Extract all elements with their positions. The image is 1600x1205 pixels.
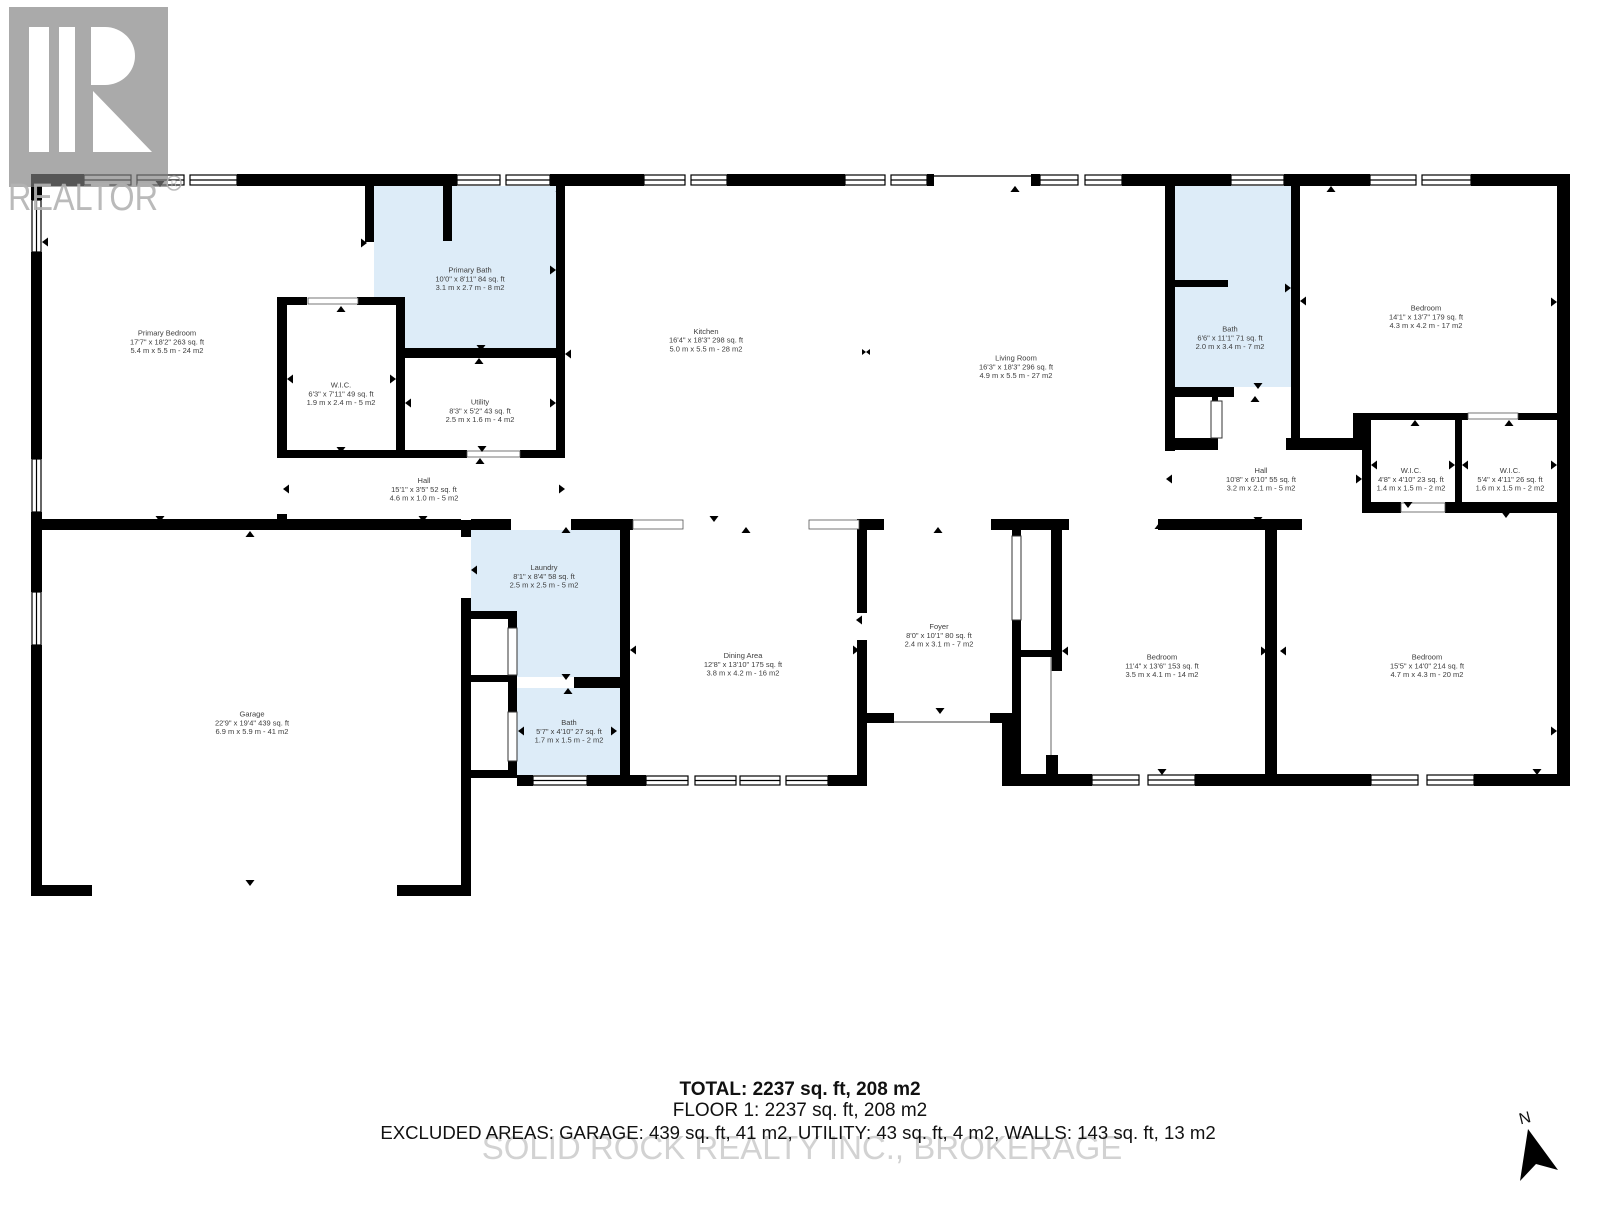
svg-text:8'1" x 8'4" 58 sq. ft: 8'1" x 8'4" 58 sq. ft [513, 572, 575, 581]
svg-text:3.5 m x 4.1 m - 14 m2: 3.5 m x 4.1 m - 14 m2 [1126, 670, 1199, 679]
svg-text:5.4 m x 5.5 m - 24 m2: 5.4 m x 5.5 m - 24 m2 [131, 346, 204, 355]
svg-text:17'7" x 18'2" 263 sq. ft: 17'7" x 18'2" 263 sq. ft [130, 337, 205, 346]
svg-text:Primary Bath: Primary Bath [448, 265, 491, 274]
svg-text:W.I.C.: W.I.C. [1401, 466, 1421, 475]
svg-text:1.7 m x 1.5 m - 2 m2: 1.7 m x 1.5 m - 2 m2 [535, 736, 604, 745]
svg-text:2.5 m x 1.6 m - 4 m2: 2.5 m x 1.6 m - 4 m2 [446, 415, 515, 424]
svg-text:3.1 m x 2.7 m - 8 m2: 3.1 m x 2.7 m - 8 m2 [436, 283, 505, 292]
svg-text:Utility: Utility [471, 397, 490, 406]
svg-text:Living Room: Living Room [995, 353, 1037, 362]
svg-text:10'8" x 6'10" 55 sq. ft: 10'8" x 6'10" 55 sq. ft [1226, 475, 1297, 484]
svg-text:Hall: Hall [418, 476, 431, 485]
svg-text:4.6 m x 1.0 m - 5 m2: 4.6 m x 1.0 m - 5 m2 [390, 494, 459, 503]
svg-text:5.0 m x 5.5 m - 28 m2: 5.0 m x 5.5 m - 28 m2 [670, 344, 743, 353]
svg-text:1.6 m x 1.5 m - 2 m2: 1.6 m x 1.5 m - 2 m2 [1476, 484, 1545, 493]
svg-text:Bedroom: Bedroom [1412, 652, 1442, 661]
svg-text:4'8" x 4'10" 23 sq. ft: 4'8" x 4'10" 23 sq. ft [1378, 475, 1445, 484]
svg-text:Dining Area: Dining Area [724, 651, 764, 660]
svg-text:FLOOR 1: 2237 sq. ft, 208 m2: FLOOR 1: 2237 sq. ft, 208 m2 [673, 1100, 928, 1121]
svg-text:Bath: Bath [1222, 324, 1237, 333]
svg-text:6.9 m x 5.9 m - 41 m2: 6.9 m x 5.9 m - 41 m2 [216, 727, 289, 736]
svg-text:4.9 m x 5.5 m - 27 m2: 4.9 m x 5.5 m - 27 m2 [980, 371, 1053, 380]
svg-text:8'3" x 5'2" 43 sq. ft: 8'3" x 5'2" 43 sq. ft [449, 406, 511, 415]
svg-text:6'6" x 11'1" 71 sq. ft: 6'6" x 11'1" 71 sq. ft [1197, 333, 1263, 342]
svg-text:3.8 m x 4.2 m - 16 m2: 3.8 m x 4.2 m - 16 m2 [707, 669, 780, 678]
svg-text:16'4" x 18'3" 298 sq. ft: 16'4" x 18'3" 298 sq. ft [669, 336, 744, 345]
svg-text:10'0" x 8'11" 84 sq. ft: 10'0" x 8'11" 84 sq. ft [435, 274, 505, 283]
svg-text:12'8" x 13'10" 175 sq. ft: 12'8" x 13'10" 175 sq. ft [704, 660, 783, 669]
svg-text:15'5" x 14'0" 214 sq. ft: 15'5" x 14'0" 214 sq. ft [1390, 661, 1465, 670]
svg-text:2.0 m x 3.4 m - 7 m2: 2.0 m x 3.4 m - 7 m2 [1196, 342, 1265, 351]
svg-text:W.I.C.: W.I.C. [331, 380, 351, 389]
svg-text:1.4 m x 1.5 m - 2 m2: 1.4 m x 1.5 m - 2 m2 [1377, 484, 1446, 493]
svg-text:6'3" x 7'11" 49 sq. ft: 6'3" x 7'11" 49 sq. ft [308, 389, 374, 398]
svg-text:15'1" x 3'5" 52 sq. ft: 15'1" x 3'5" 52 sq. ft [391, 485, 458, 494]
svg-text:Bath: Bath [561, 718, 576, 727]
svg-text:Laundry: Laundry [530, 563, 557, 572]
svg-text:2.5 m x 2.5 m - 5 m2: 2.5 m x 2.5 m - 5 m2 [510, 581, 579, 590]
svg-text:8'0" x 10'1" 80 sq. ft: 8'0" x 10'1" 80 sq. ft [906, 631, 973, 640]
svg-text:2.4 m x 3.1 m - 7 m2: 2.4 m x 3.1 m - 7 m2 [905, 640, 974, 649]
svg-text:Garage: Garage [239, 709, 264, 718]
svg-text:4.3 m x 4.2 m - 17 m2: 4.3 m x 4.2 m - 17 m2 [1390, 321, 1463, 330]
svg-text:1.9 m x 2.4 m - 5 m2: 1.9 m x 2.4 m - 5 m2 [307, 398, 376, 407]
svg-text:Bedroom: Bedroom [1147, 652, 1177, 661]
svg-text:R: R [171, 178, 178, 188]
svg-text:16'3" x 18'3" 296 sq. ft: 16'3" x 18'3" 296 sq. ft [979, 362, 1054, 371]
svg-text:22'9" x 19'4" 439 sq. ft: 22'9" x 19'4" 439 sq. ft [215, 718, 290, 727]
svg-text:4.7 m x 4.3 m - 20 m2: 4.7 m x 4.3 m - 20 m2 [1391, 670, 1464, 679]
svg-text:REALTOR: REALTOR [8, 177, 158, 219]
svg-text:Bedroom: Bedroom [1411, 303, 1441, 312]
svg-text:Kitchen: Kitchen [693, 327, 718, 336]
svg-text:5'4" x 4'11" 26 sq. ft: 5'4" x 4'11" 26 sq. ft [1477, 475, 1543, 484]
svg-text:11'4" x 13'6" 153 sq. ft: 11'4" x 13'6" 153 sq. ft [1125, 661, 1199, 670]
svg-text:EXCLUDED AREAS: GARAGE: 439 sq: EXCLUDED AREAS: GARAGE: 439 sq. ft, 41 m… [380, 1122, 1215, 1143]
svg-text:Foyer: Foyer [929, 622, 949, 631]
svg-text:Primary Bedroom: Primary Bedroom [138, 328, 196, 337]
svg-text:3.2 m x 2.1 m - 5 m2: 3.2 m x 2.1 m - 5 m2 [1227, 484, 1296, 493]
svg-text:14'1" x 13'7" 179 sq. ft: 14'1" x 13'7" 179 sq. ft [1389, 312, 1464, 321]
svg-text:Hall: Hall [1255, 466, 1268, 475]
svg-text:5'7" x 4'10" 27 sq. ft: 5'7" x 4'10" 27 sq. ft [536, 727, 603, 736]
svg-text:TOTAL: 2237 sq. ft, 208 m2: TOTAL: 2237 sq. ft, 208 m2 [679, 1079, 920, 1100]
svg-text:W.I.C.: W.I.C. [1500, 466, 1520, 475]
